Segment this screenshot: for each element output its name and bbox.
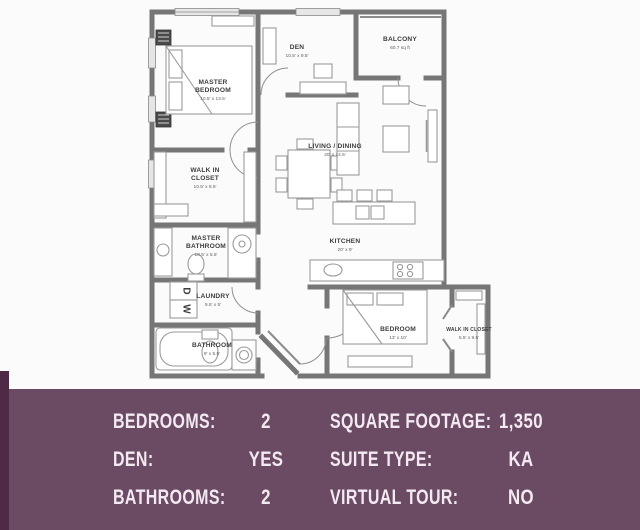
svg-text:10.5' x 5.5': 10.5' x 5.5' [195, 252, 218, 258]
virtual-tour-value: NO [477, 486, 565, 510]
sofa [337, 103, 359, 175]
svg-text:CLOSET: CLOSET [191, 175, 219, 182]
master-vanity [154, 228, 172, 276]
room-label-den: DEN 10.5' x 9.5' [286, 44, 309, 59]
svg-text:KITCHEN: KITCHEN [330, 238, 361, 245]
svg-text:60.7 sq ft: 60.7 sq ft [390, 45, 410, 51]
room-label-master-bathroom: MASTER BATHROOM 10.5' x 5.5' [186, 235, 226, 258]
svg-text:BATHROOM: BATHROOM [192, 342, 232, 349]
svg-text:WALK IN: WALK IN [190, 167, 219, 174]
room-label-balcony: BALCONY 60.7 sq ft [383, 36, 417, 51]
svg-text:MASTER: MASTER [191, 235, 220, 242]
unit-info-panel: BEDROOMS: 2 DEN: YES BATHROOMS: 2 SQUARE… [9, 389, 640, 530]
svg-text:10.5' x 9.5': 10.5' x 9.5' [286, 53, 309, 59]
den-label: DEN: [113, 448, 154, 472]
toilet-tank [202, 330, 218, 339]
dryer-letter: D [181, 287, 192, 294]
room-label-kitchen: KITCHEN 20' x 9' [330, 238, 361, 253]
coffee-table [383, 126, 409, 152]
svg-text:DEN: DEN [290, 44, 305, 51]
bathrooms-label: BATHROOMS: [113, 486, 226, 510]
bathtub [156, 328, 232, 370]
bookshelf [263, 28, 276, 64]
svg-text:MASTER: MASTER [198, 79, 227, 86]
svg-text:LAUNDRY: LAUNDRY [196, 293, 230, 300]
svg-text:9.5' x 5': 9.5' x 5' [205, 302, 221, 308]
washer-letter: W [181, 304, 192, 314]
svg-text:BEDROOM: BEDROOM [380, 326, 416, 333]
svg-text:BATHROOM: BATHROOM [186, 243, 226, 250]
virtual-tour-label: VIRTUAL TOUR: [330, 486, 458, 510]
svg-text:BALCONY: BALCONY [383, 36, 417, 43]
suite-type-label: SUITE TYPE: [330, 448, 433, 472]
dresser [348, 356, 412, 367]
furniture: D W [154, 16, 485, 370]
closet-shelving [456, 291, 482, 300]
suite-type-value: KA [477, 448, 565, 472]
svg-text:WALK IN CLOSET: WALK IN CLOSET [446, 327, 492, 333]
desk [300, 82, 346, 94]
bedrooms-value: 2 [230, 410, 302, 434]
svg-text:10.5' x 8.5': 10.5' x 8.5' [194, 184, 217, 190]
floor-plan-drawing: D W MASTER BEDROOM 10.5' x 13.5' [0, 0, 640, 390]
svg-text:13' x 10': 13' x 10' [389, 335, 407, 341]
panel-accent-bar [0, 371, 9, 530]
svg-text:5.5' x 9.5': 5.5' x 9.5' [459, 335, 479, 341]
svg-text:9' x 5.5': 9' x 5.5' [204, 351, 220, 357]
desk-chair [314, 64, 332, 78]
svg-text:BEDROOM: BEDROOM [195, 87, 231, 94]
room-label-laundry: LAUNDRY 9.5' x 5' [196, 293, 230, 308]
stove [393, 262, 423, 279]
square-footage-value: 1,350 [477, 410, 565, 434]
closet-shelving [244, 152, 256, 222]
duct-hatch-icon [156, 30, 171, 45]
bedrooms-label: BEDROOMS: [113, 410, 216, 434]
room-label-walk-in-closet: WALK IN CLOSET 10.5' x 8.5' [190, 167, 219, 190]
floor-plan: D W MASTER BEDROOM 10.5' x 13.5' [0, 0, 640, 390]
svg-text:LIVING / DINING: LIVING / DINING [308, 143, 362, 150]
square-footage-label: SQUARE FOOTAGE: [330, 410, 491, 434]
svg-text:20' x 9': 20' x 9' [338, 247, 353, 253]
svg-text:10.5' x 13.5': 10.5' x 13.5' [200, 96, 226, 102]
armchair [383, 86, 409, 104]
kitchen-counter [310, 260, 444, 281]
closet-shelving [154, 204, 188, 216]
svg-text:20' x 14.5': 20' x 14.5' [324, 152, 346, 158]
den-value: YES [230, 448, 302, 472]
bathrooms-value: 2 [230, 486, 302, 510]
wardrobe [212, 16, 254, 26]
tv-console [428, 110, 437, 162]
